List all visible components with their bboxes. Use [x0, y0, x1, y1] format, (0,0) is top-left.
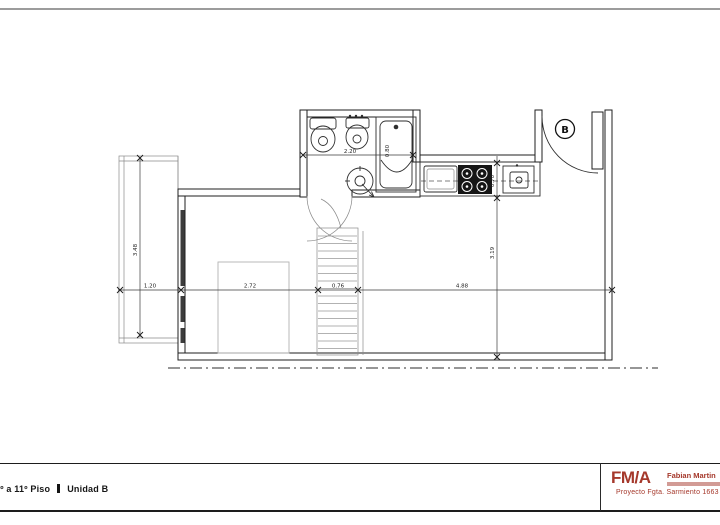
unit-label: B — [561, 125, 569, 136]
sheet-title: 1º a 11º PisoUnidad B — [0, 484, 108, 494]
stairs — [317, 199, 363, 355]
dim-living-width: 2.72 — [244, 284, 256, 290]
unit-label-circle: B — [556, 120, 575, 139]
bathroom-door-swing — [307, 196, 352, 241]
balcony — [119, 156, 178, 343]
footer-top-rule — [0, 463, 720, 464]
dim-balcony-width: 1.20 — [144, 284, 157, 290]
floor-label: 1º a 11º Piso — [0, 484, 50, 494]
fine-print-text — [667, 482, 720, 486]
dim-stair-width: 0.76 — [332, 284, 345, 290]
dim-main-width: 4.88 — [456, 284, 469, 290]
exterior-walls — [178, 110, 612, 360]
bathroom-walls — [300, 110, 420, 197]
toilet — [310, 118, 336, 152]
dim-tub-width: 0.80 — [385, 144, 391, 157]
architect-name: Fabian Martin — [667, 471, 716, 480]
dim-counter-depth: 0.70 — [490, 174, 496, 187]
kitchen-sink — [503, 164, 534, 193]
separator-bar — [57, 484, 60, 493]
dim-balcony-height: 3.48 — [133, 243, 139, 256]
footer-bottom-rule — [0, 510, 720, 512]
furniture-outline — [218, 262, 289, 353]
bathtub — [376, 117, 416, 192]
floor-plan-drawing: B — [0, 0, 720, 525]
entry-door-leaf — [592, 112, 603, 169]
refrigerator — [424, 166, 457, 192]
studio-logo: FM/A — [611, 468, 651, 488]
stove — [458, 165, 492, 194]
entry-door-swing — [542, 116, 598, 173]
unit-name-label: Unidad B — [67, 484, 108, 494]
dim-room-depth: 3.19 — [490, 246, 496, 259]
title-block-divider — [600, 463, 601, 511]
dim-bath-width: 2.20 — [344, 149, 357, 155]
drawing-page: B — [0, 0, 720, 525]
bidet — [346, 115, 369, 149]
project-address: Proyecto Fgta. Sarmiento 1663 — [616, 489, 719, 496]
entry — [535, 110, 603, 173]
